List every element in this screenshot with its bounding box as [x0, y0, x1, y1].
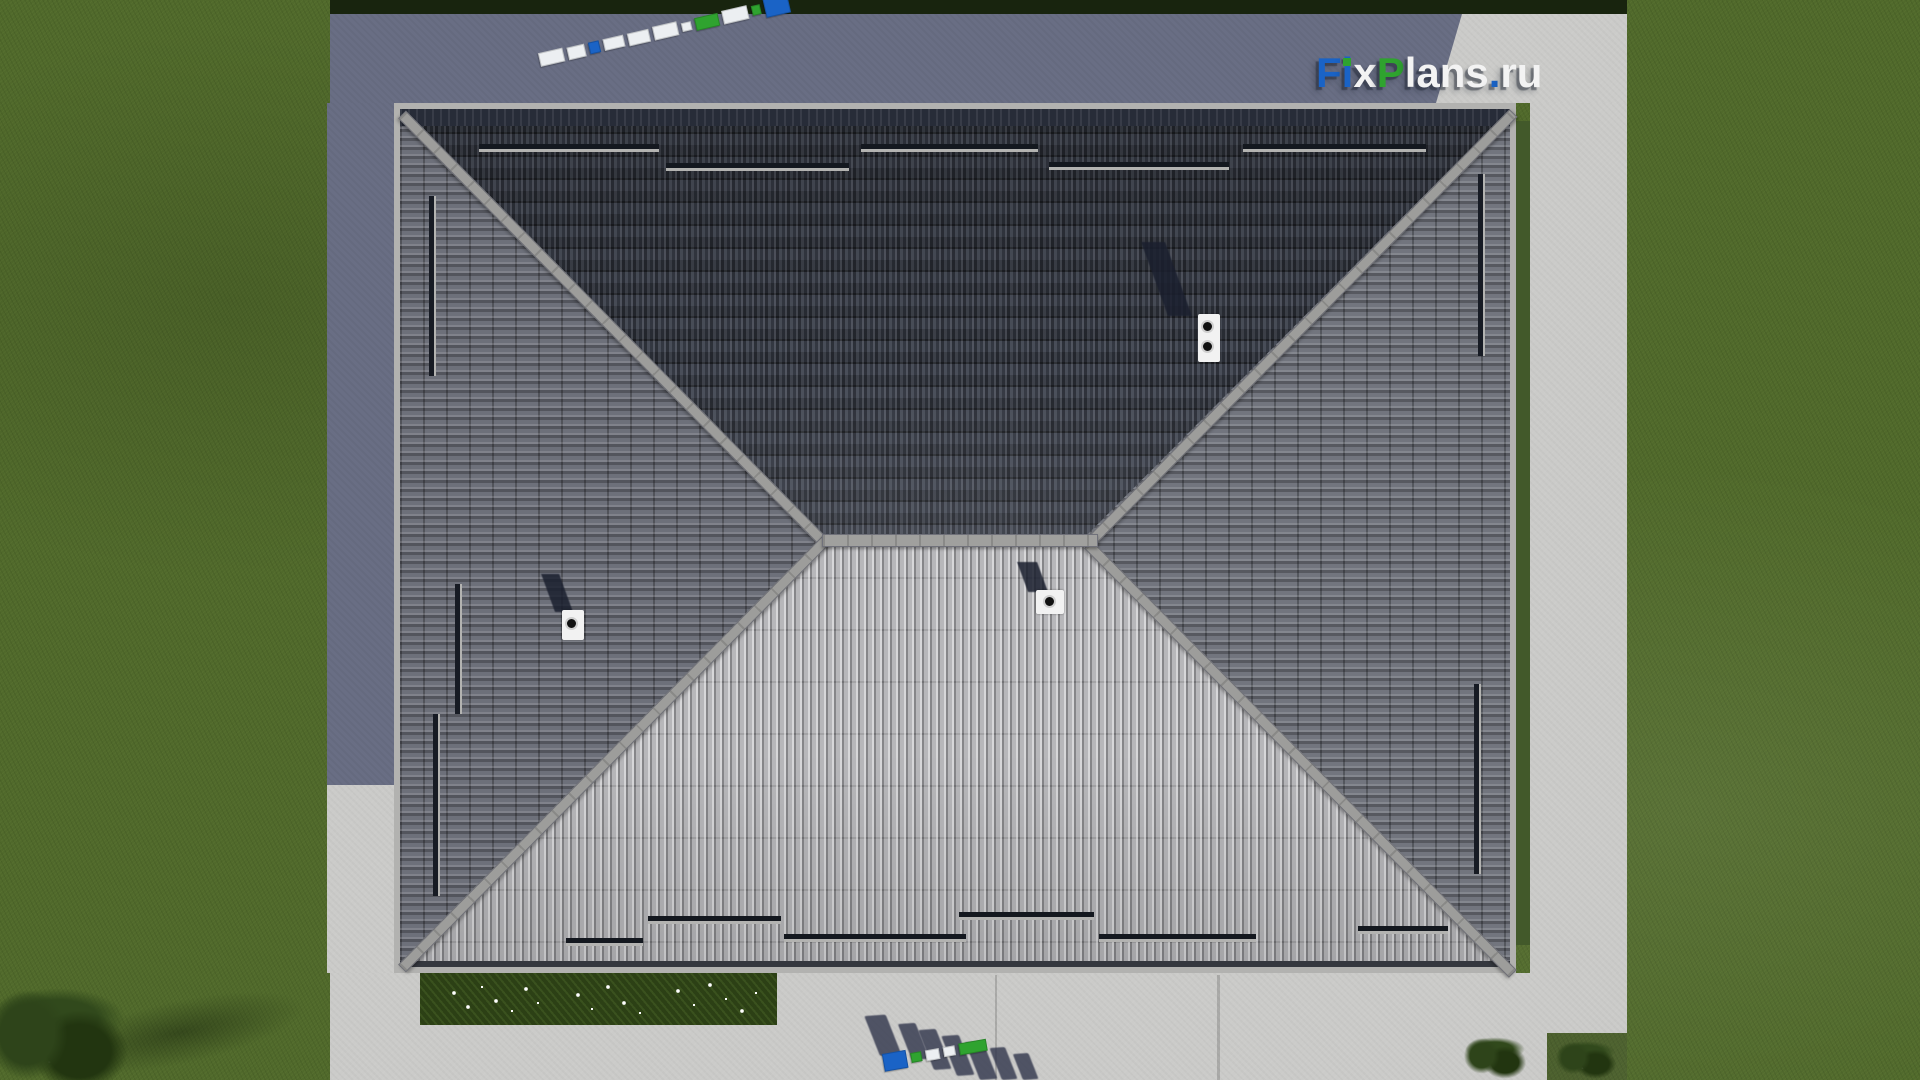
snow-guard-rail — [861, 149, 1038, 152]
main-ridge — [822, 534, 1098, 547]
eave-line-south — [400, 961, 1510, 967]
snow-guard-pipe — [434, 196, 436, 376]
eave-shadow-band — [400, 109, 1510, 126]
snow-guard-rail — [784, 939, 966, 942]
watermark-letter-p: P — [1377, 52, 1405, 94]
logo-block-white — [566, 43, 587, 60]
logo-block-white — [626, 28, 651, 46]
vent-hole — [1043, 595, 1056, 608]
logo-block-green — [750, 4, 762, 16]
logo-block-green — [910, 1051, 923, 1063]
snow-guard-rail — [1358, 931, 1448, 934]
logo-block-white — [943, 1045, 957, 1057]
chimney-flue-hole — [1201, 340, 1214, 353]
bush — [1554, 1040, 1618, 1080]
roof-tiles — [400, 109, 1510, 967]
building-shadow-left — [327, 103, 394, 785]
snow-guard-pipe — [1483, 174, 1485, 356]
watermark-fixplans: FixPlans.ru — [1316, 52, 1542, 94]
building-shadow-top — [330, 14, 1465, 103]
concrete-right-path — [1530, 103, 1627, 1035]
logo-block-white — [602, 35, 625, 51]
hip-roof — [394, 103, 1516, 973]
logo-block-white — [680, 21, 692, 32]
watermark-letter-i: i — [1342, 52, 1354, 94]
snow-guard-rail — [1049, 167, 1229, 170]
vent-pipe — [1036, 590, 1064, 614]
watermark-letter-f: F — [1316, 52, 1342, 94]
logo-block-white — [538, 48, 565, 67]
snow-guard-pipe — [1479, 684, 1481, 874]
logo-block-blue — [882, 1050, 909, 1072]
vent-hole — [565, 617, 578, 630]
snow-guard-pipe — [438, 714, 440, 896]
snow-guard-rail — [566, 943, 643, 946]
logo-block-white — [721, 5, 749, 24]
snow-guard-rail — [1099, 939, 1256, 942]
chimney-flue-hole — [1201, 320, 1214, 333]
watermark-letters-lans: lans — [1405, 52, 1489, 94]
logo-block-blue — [588, 40, 601, 54]
snow-guard-pipe — [460, 584, 462, 714]
chimney — [1198, 314, 1220, 362]
snow-guard-rail — [959, 917, 1094, 920]
snow-guard-rail — [666, 168, 849, 171]
concrete-joint — [1217, 975, 1220, 1080]
snow-guard-rail — [1243, 149, 1426, 152]
flowerbed-south — [420, 973, 777, 1025]
logo-block-white — [925, 1048, 941, 1061]
bush — [0, 985, 132, 1080]
logo-block-blue — [763, 0, 791, 17]
logo-block-green — [958, 1039, 988, 1056]
watermark-letters-ru: ru — [1500, 52, 1542, 94]
logo-block-white — [652, 21, 679, 40]
watermark-letter-x: x — [1353, 52, 1376, 94]
snow-guard-rail — [648, 921, 781, 924]
grass-strip-right — [1516, 121, 1530, 945]
vent-pipe — [562, 610, 584, 640]
snow-guard-rail — [479, 149, 659, 152]
bush — [1462, 1036, 1528, 1080]
logo-block-green — [693, 12, 720, 30]
watermark-dot: . — [1489, 52, 1501, 94]
aerial-roof-render: FixPlans.ru — [0, 0, 1920, 1080]
